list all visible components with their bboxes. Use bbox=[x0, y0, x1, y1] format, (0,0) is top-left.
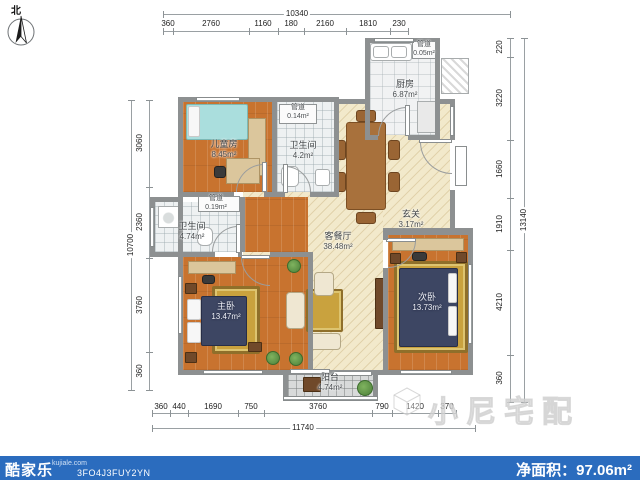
room-label-master: 主卧 13.47m² bbox=[211, 301, 240, 322]
bathroom-top-door bbox=[283, 164, 288, 193]
dim-seg: 1160 bbox=[254, 20, 271, 28]
watermark-text: 小尼宅配 bbox=[428, 387, 580, 431]
dim-seg: 220 bbox=[496, 40, 504, 53]
wall bbox=[310, 192, 339, 197]
tick bbox=[128, 390, 135, 391]
children-chair bbox=[214, 166, 226, 178]
nightstand bbox=[185, 283, 197, 294]
net-area: 净面积：97.06m² bbox=[516, 459, 632, 480]
room-label-children: 儿童房 8.45m² bbox=[210, 139, 237, 160]
tick bbox=[507, 57, 514, 58]
wall bbox=[334, 99, 339, 192]
nightstand bbox=[185, 352, 197, 363]
tick bbox=[146, 100, 153, 101]
wall bbox=[339, 99, 365, 104]
tick bbox=[264, 410, 265, 417]
dim-seg: 3760 bbox=[309, 403, 327, 411]
brand-logo: 酷家乐 bbox=[5, 459, 53, 480]
tick bbox=[510, 11, 511, 18]
dim-total-left: 10700 bbox=[127, 232, 135, 258]
kitchen-sink-left bbox=[373, 46, 389, 58]
wall bbox=[150, 197, 183, 202]
window bbox=[196, 97, 240, 102]
room-label-duct-left: 管道 0.19m² bbox=[205, 195, 227, 213]
room-label-balcony: 阳台 4.74m² bbox=[318, 372, 343, 393]
wall bbox=[365, 38, 370, 140]
tick bbox=[304, 28, 305, 35]
dim-seg: 1810 bbox=[359, 20, 377, 28]
tick bbox=[521, 38, 528, 39]
tick bbox=[278, 28, 279, 35]
dim-seg: 2360 bbox=[136, 213, 144, 231]
plan-code: 3FO4J3FUY2YN bbox=[77, 468, 151, 478]
second-door bbox=[386, 238, 416, 242]
watermark-cube-icon bbox=[392, 386, 422, 416]
balcony-window bbox=[283, 396, 378, 401]
tick bbox=[146, 390, 153, 391]
room-label-kitchen: 厨房 6.87m² bbox=[393, 79, 418, 100]
dining-chair bbox=[388, 140, 400, 160]
tick bbox=[146, 187, 153, 188]
tick bbox=[249, 28, 250, 35]
window bbox=[450, 106, 455, 136]
tick bbox=[507, 250, 514, 251]
kitchen-sink-right bbox=[391, 46, 407, 58]
dim-seg: 2160 bbox=[316, 20, 334, 28]
window bbox=[468, 264, 473, 344]
tick bbox=[507, 355, 514, 356]
tick bbox=[346, 28, 347, 35]
kitchen-door bbox=[405, 105, 410, 136]
wall bbox=[264, 192, 285, 197]
dim-seg: 360 bbox=[136, 364, 144, 377]
tick bbox=[152, 425, 153, 432]
children-pillow bbox=[188, 106, 200, 137]
dining-chair bbox=[356, 212, 376, 224]
window bbox=[400, 370, 452, 375]
wall bbox=[270, 252, 313, 257]
wall bbox=[308, 252, 313, 370]
sink-top bbox=[315, 169, 330, 186]
dining-chair bbox=[388, 172, 400, 192]
wall bbox=[272, 97, 277, 192]
nightstand bbox=[456, 252, 467, 263]
washing-machine bbox=[158, 206, 179, 228]
dim-line bbox=[163, 14, 510, 15]
master-pillow bbox=[187, 322, 201, 343]
brand-site: kujiale.com bbox=[52, 460, 87, 467]
tick bbox=[507, 198, 514, 199]
entry-step bbox=[455, 146, 467, 186]
wall bbox=[150, 252, 215, 257]
net-area-label: 净面积： bbox=[516, 462, 576, 479]
compass-icon bbox=[4, 12, 38, 48]
sofa bbox=[286, 292, 305, 329]
room-label-living: 客餐厅 38.48m² bbox=[323, 231, 352, 252]
dim-total-top: 10340 bbox=[284, 10, 310, 18]
footer-bar: 酷家乐 kujiale.com 3FO4J3FUY2YN 净面积：97.06m² bbox=[0, 456, 640, 480]
wall bbox=[365, 135, 378, 140]
dim-seg: 360 bbox=[496, 371, 504, 384]
master-desk bbox=[188, 261, 236, 274]
floorplan-canvas: 厨房 6.87m² 管道 0.05m² 儿童房 8.45m² 卫生间 4.2m²… bbox=[0, 0, 640, 480]
tick bbox=[128, 100, 135, 101]
dim-total-right: 13140 bbox=[520, 207, 528, 233]
dim-seg: 3220 bbox=[496, 89, 504, 107]
armchair bbox=[314, 272, 334, 296]
tick bbox=[390, 28, 391, 35]
window bbox=[178, 276, 183, 334]
tick bbox=[163, 28, 164, 35]
tick bbox=[170, 410, 171, 417]
fridge bbox=[417, 101, 436, 133]
dim-total-bottom: 11740 bbox=[290, 424, 316, 432]
dim-seg: 360 bbox=[154, 403, 167, 411]
tick bbox=[188, 410, 189, 417]
dim-seg: 1690 bbox=[204, 403, 222, 411]
dim-seg: 1660 bbox=[496, 160, 504, 178]
dim-seg: 440 bbox=[172, 403, 185, 411]
second-chair bbox=[412, 252, 427, 261]
wall bbox=[238, 252, 242, 257]
tick bbox=[173, 28, 174, 35]
second-pillow bbox=[448, 306, 457, 336]
plant-icon bbox=[287, 259, 301, 273]
window bbox=[374, 38, 414, 43]
dim-seg: 790 bbox=[375, 403, 388, 411]
dim-line bbox=[510, 38, 511, 402]
room-label-kitchen-duct: 管道 0.05m² bbox=[413, 41, 435, 59]
wall bbox=[240, 197, 245, 252]
tick bbox=[507, 140, 514, 141]
wall bbox=[373, 375, 378, 398]
tick bbox=[146, 258, 153, 259]
plant-icon bbox=[357, 380, 373, 396]
corridor-floor bbox=[245, 197, 308, 252]
dim-seg: 3060 bbox=[136, 134, 144, 152]
dim-line bbox=[163, 31, 408, 32]
wall bbox=[383, 228, 473, 235]
room-label-bath-left: 卫生间 4.74m² bbox=[178, 221, 205, 242]
net-area-value: 97.06m² bbox=[576, 462, 632, 479]
plant-icon bbox=[266, 351, 280, 365]
wall bbox=[383, 235, 388, 240]
dim-seg: 3760 bbox=[136, 296, 144, 314]
master-chair bbox=[202, 275, 215, 284]
tick bbox=[507, 38, 514, 39]
room-label-bath-top: 卫生间 4.2m² bbox=[289, 140, 316, 161]
tick bbox=[372, 410, 373, 417]
dim-seg: 750 bbox=[244, 403, 257, 411]
ac-ledge bbox=[441, 58, 469, 94]
dim-seg: 360 bbox=[161, 20, 174, 28]
dim-seg: 4210 bbox=[496, 293, 504, 311]
master-pillow bbox=[187, 299, 201, 320]
window bbox=[203, 370, 263, 375]
children-door bbox=[262, 162, 267, 192]
plant-icon bbox=[289, 352, 303, 366]
dim-seg: 180 bbox=[284, 20, 297, 28]
window bbox=[150, 207, 155, 247]
dim-seg: 230 bbox=[392, 20, 405, 28]
room-label-duct-top: 管道 0.14m² bbox=[287, 104, 309, 122]
tick bbox=[408, 28, 409, 35]
tick bbox=[146, 352, 153, 353]
tick bbox=[152, 410, 153, 417]
dim-seg: 1910 bbox=[496, 215, 504, 233]
wall bbox=[283, 375, 288, 398]
wall bbox=[383, 268, 388, 370]
master-door bbox=[241, 255, 270, 259]
second-pillow bbox=[448, 273, 457, 303]
tick bbox=[163, 11, 164, 18]
room-label-second: 次卧 13.73m² bbox=[412, 292, 441, 313]
wall bbox=[408, 135, 440, 140]
room-label-entry: 玄关 3.17m² bbox=[399, 209, 424, 230]
dim-seg: 2760 bbox=[202, 20, 220, 28]
master-bench bbox=[248, 342, 262, 352]
tick bbox=[238, 410, 239, 417]
